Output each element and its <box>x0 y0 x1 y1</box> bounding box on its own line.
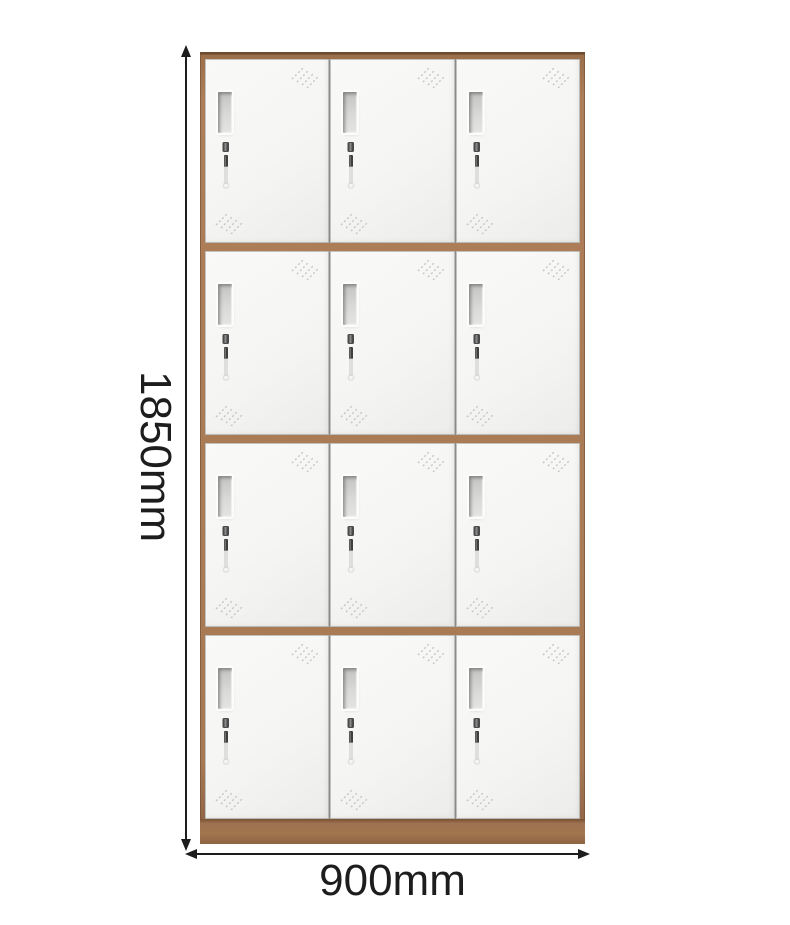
cabinet-plinth-base <box>200 820 585 844</box>
vent-slits-icon <box>339 596 369 618</box>
locker-door <box>205 59 329 243</box>
cabinet-door-grid <box>200 52 585 820</box>
width-dimension-label: 900mm <box>200 859 585 903</box>
height-dimension-label: 1850mm <box>133 371 177 542</box>
vent-slits-icon <box>214 212 244 234</box>
vent-slits-icon <box>290 66 320 88</box>
vent-slits-icon <box>416 258 446 280</box>
vent-slits-icon <box>541 450 571 472</box>
lock-and-key-icon <box>469 141 485 191</box>
vent-slits-icon <box>290 642 320 664</box>
door-vent-window <box>469 476 483 517</box>
vent-slits-icon <box>214 788 244 810</box>
vent-slits-icon <box>339 212 369 234</box>
arrow-right-icon <box>578 849 590 859</box>
lock-and-key-icon <box>218 333 234 383</box>
locker-door <box>455 443 580 627</box>
locker-door <box>455 635 580 819</box>
door-vent-window <box>469 668 483 709</box>
locker-door <box>329 443 454 627</box>
lock-and-key-icon <box>343 717 359 767</box>
lock-and-key-icon <box>469 333 485 383</box>
locker-door <box>205 635 329 819</box>
vent-slits-icon <box>339 788 369 810</box>
locker-door <box>329 59 454 243</box>
locker-door <box>205 251 329 435</box>
locker-row <box>205 635 580 819</box>
width-dimension-line <box>195 853 581 855</box>
lock-and-key-icon <box>343 141 359 191</box>
arrow-left-icon <box>185 849 197 859</box>
locker-door <box>455 251 580 435</box>
height-dimension-line <box>185 56 187 842</box>
door-vent-window <box>343 92 357 133</box>
vent-slits-icon <box>214 404 244 426</box>
door-vent-window <box>218 284 232 325</box>
vent-slits-icon <box>465 788 495 810</box>
arrow-up-icon <box>181 45 191 57</box>
vent-slits-icon <box>214 596 244 618</box>
vent-slits-icon <box>465 596 495 618</box>
product-dimension-diagram: 1850mm 900mm <box>0 0 790 925</box>
locker-row <box>205 59 580 243</box>
vent-slits-icon <box>541 642 571 664</box>
locker-row <box>205 251 580 435</box>
vent-slits-icon <box>541 258 571 280</box>
lock-and-key-icon <box>469 717 485 767</box>
lock-and-key-icon <box>218 525 234 575</box>
locker-door <box>329 251 454 435</box>
lock-and-key-icon <box>343 525 359 575</box>
door-vent-window <box>343 668 357 709</box>
vent-slits-icon <box>465 404 495 426</box>
lock-and-key-icon <box>469 525 485 575</box>
locker-row <box>205 443 580 627</box>
lock-and-key-icon <box>343 333 359 383</box>
vent-slits-icon <box>416 450 446 472</box>
door-vent-window <box>343 284 357 325</box>
door-vent-window <box>218 476 232 517</box>
vent-slits-icon <box>416 642 446 664</box>
locker-door <box>205 443 329 627</box>
door-vent-window <box>343 476 357 517</box>
door-vent-window <box>469 284 483 325</box>
vent-slits-icon <box>290 450 320 472</box>
vent-slits-icon <box>465 212 495 234</box>
lock-and-key-icon <box>218 141 234 191</box>
lock-and-key-icon <box>218 717 234 767</box>
vent-slits-icon <box>290 258 320 280</box>
vent-slits-icon <box>416 66 446 88</box>
locker-door <box>329 635 454 819</box>
door-vent-window <box>469 92 483 133</box>
vent-slits-icon <box>339 404 369 426</box>
door-vent-window <box>218 668 232 709</box>
door-vent-window <box>218 92 232 133</box>
locker-door <box>455 59 580 243</box>
vent-slits-icon <box>541 66 571 88</box>
